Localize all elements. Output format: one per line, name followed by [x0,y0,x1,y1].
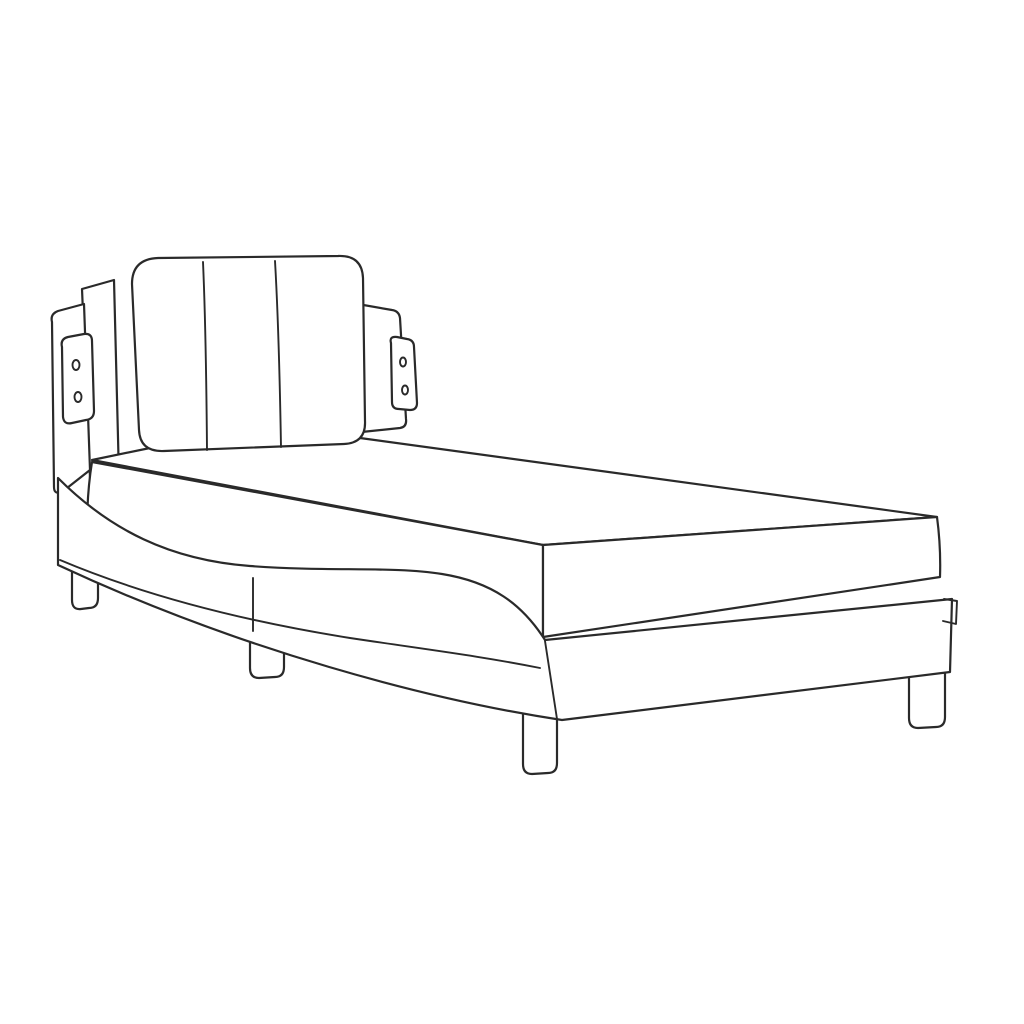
headboard-left-bracket [62,334,94,424]
bed-line-art [52,256,957,774]
headboard-cushion [132,256,365,451]
headboard-right-bracket [391,337,417,410]
bed-dimension-diagram [0,0,1024,1024]
bed-leg [909,672,945,728]
